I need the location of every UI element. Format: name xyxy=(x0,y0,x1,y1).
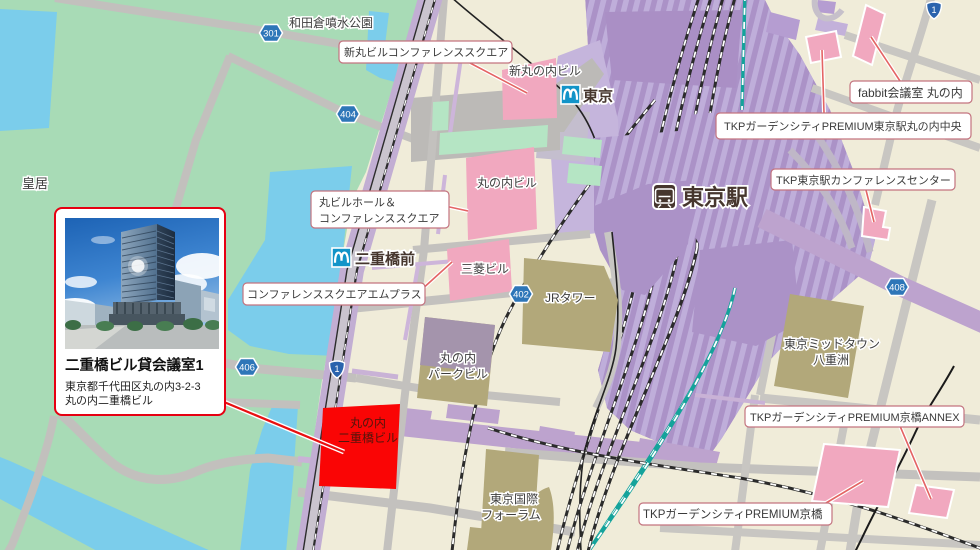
svg-text:東京駅: 東京駅 xyxy=(682,185,748,210)
svg-text:東京国際: 東京国際 xyxy=(490,492,538,506)
svg-text:301: 301 xyxy=(263,29,279,40)
svg-text:コンファレンススクエアエムプラス: コンファレンススクエアエムプラス xyxy=(247,288,422,301)
svg-text:JRタワー: JRタワー xyxy=(545,291,596,305)
svg-text:新丸の内ビル: 新丸の内ビル xyxy=(509,63,581,78)
svg-text:二重橋ビル: 二重橋ビル xyxy=(338,431,398,445)
svg-text:丸の内ビル: 丸の内ビル xyxy=(477,176,537,190)
svg-text:東京ミッドタウン: 東京ミッドタウン xyxy=(784,337,880,351)
svg-text:東京: 東京 xyxy=(583,87,613,105)
svg-text:404: 404 xyxy=(340,110,356,121)
svg-text:丸ビルホール＆: 丸ビルホール＆ xyxy=(319,196,396,209)
svg-text:TKPガーデンシティPREMIUM東京駅丸の内中央: TKPガーデンシティPREMIUM東京駅丸の内中央 xyxy=(724,119,962,133)
svg-text:丸の内: 丸の内 xyxy=(350,416,386,430)
svg-text:新丸ビルコンファレンススクエア: 新丸ビルコンファレンススクエア xyxy=(344,45,508,59)
svg-text:402: 402 xyxy=(513,290,529,301)
svg-text:丸の内: 丸の内 xyxy=(440,351,476,365)
svg-text:八重洲: 八重洲 xyxy=(813,353,849,367)
svg-text:和田倉噴水公園: 和田倉噴水公園 xyxy=(289,15,373,30)
svg-text:408: 408 xyxy=(889,283,905,294)
svg-text:406: 406 xyxy=(239,363,255,374)
svg-text:皇居: 皇居 xyxy=(22,176,48,191)
svg-text:1: 1 xyxy=(931,5,936,15)
svg-text:フォーラム: フォーラム xyxy=(481,508,541,522)
svg-text:TKPガーデンシティPREMIUM京橋: TKPガーデンシティPREMIUM京橋 xyxy=(643,507,823,521)
svg-text:TKPガーデンシティPREMIUM京橋ANNEX: TKPガーデンシティPREMIUM京橋ANNEX xyxy=(750,410,960,424)
svg-text:TKP東京駅カンファレンスセンター: TKP東京駅カンファレンスセンター xyxy=(776,173,951,187)
svg-text:三菱ビル: 三菱ビル xyxy=(461,262,509,276)
svg-text:コンファレンススクエア: コンファレンススクエア xyxy=(319,212,439,225)
svg-text:fabbit会議室 丸の内: fabbit会議室 丸の内 xyxy=(858,85,963,100)
svg-text:パークビル: パークビル xyxy=(428,367,488,381)
svg-text:二重橋前: 二重橋前 xyxy=(355,250,415,268)
svg-text:1: 1 xyxy=(334,364,339,374)
